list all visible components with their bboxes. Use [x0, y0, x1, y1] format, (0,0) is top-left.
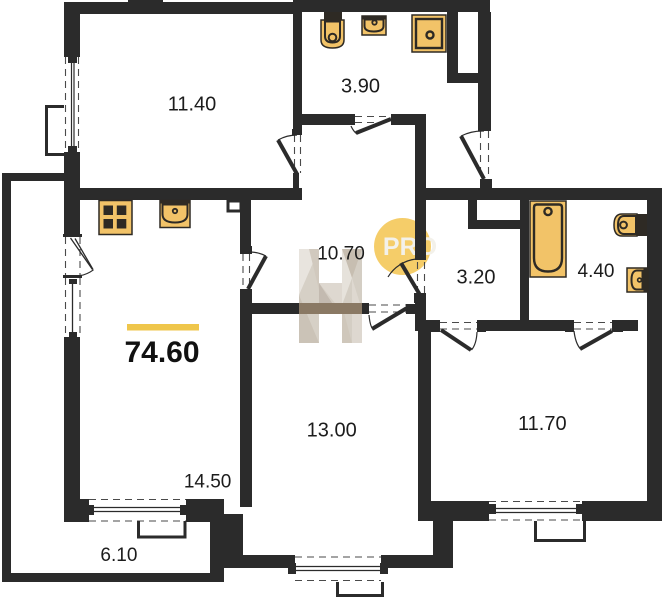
svg-text:10.70: 10.70 [317, 243, 365, 264]
svg-text:3.20: 3.20 [457, 267, 496, 289]
svg-text:4.40: 4.40 [578, 261, 615, 282]
svg-text:11.40: 11.40 [168, 94, 217, 116]
svg-text:13.00: 13.00 [307, 420, 357, 442]
svg-text:3.90: 3.90 [341, 75, 380, 97]
svg-text:14.50: 14.50 [184, 472, 232, 493]
svg-text:74.60: 74.60 [124, 336, 199, 369]
svg-text:11.70: 11.70 [518, 413, 567, 435]
svg-text:6.10: 6.10 [100, 545, 137, 566]
svg-text:PRO: PRO [383, 233, 437, 261]
